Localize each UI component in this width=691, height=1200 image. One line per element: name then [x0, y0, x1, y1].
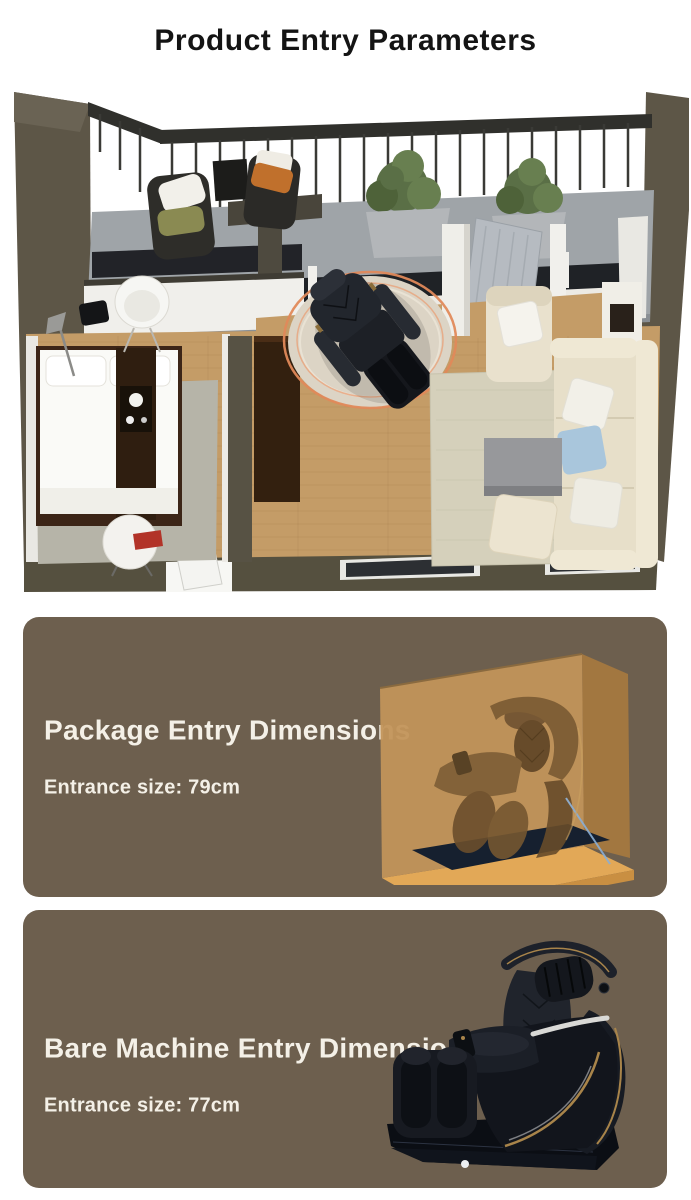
led-dot: [461, 1160, 469, 1168]
coffee-table: [484, 438, 562, 496]
bed: [36, 346, 182, 526]
legrest: [393, 1047, 477, 1138]
ottoman: [488, 494, 558, 561]
headrest: [532, 953, 596, 1004]
sofa: [550, 338, 658, 570]
package-card-subtitle: Entrance size: 79cm: [44, 777, 411, 800]
package-card-title: Package Entry Dimensions: [44, 715, 411, 747]
floorplan-image: [0, 90, 691, 592]
bare-machine-entry-card: Bare Machine Entry Dimensions Entrance s…: [23, 910, 667, 1188]
package-entry-card: Package Entry Dimensions Entrance size: …: [23, 617, 667, 897]
package-card-text: Package Entry Dimensions Entrance size: …: [44, 715, 411, 800]
page-title: Product Entry Parameters: [0, 24, 691, 58]
armchair: [486, 286, 552, 382]
product-entry-parameters-page: Product Entry Parameters: [0, 0, 691, 1200]
boxed-massage-chair-illustration: [370, 640, 645, 885]
black-massage-chair-illustration: [357, 924, 662, 1184]
black-massage-chair: [387, 947, 625, 1170]
